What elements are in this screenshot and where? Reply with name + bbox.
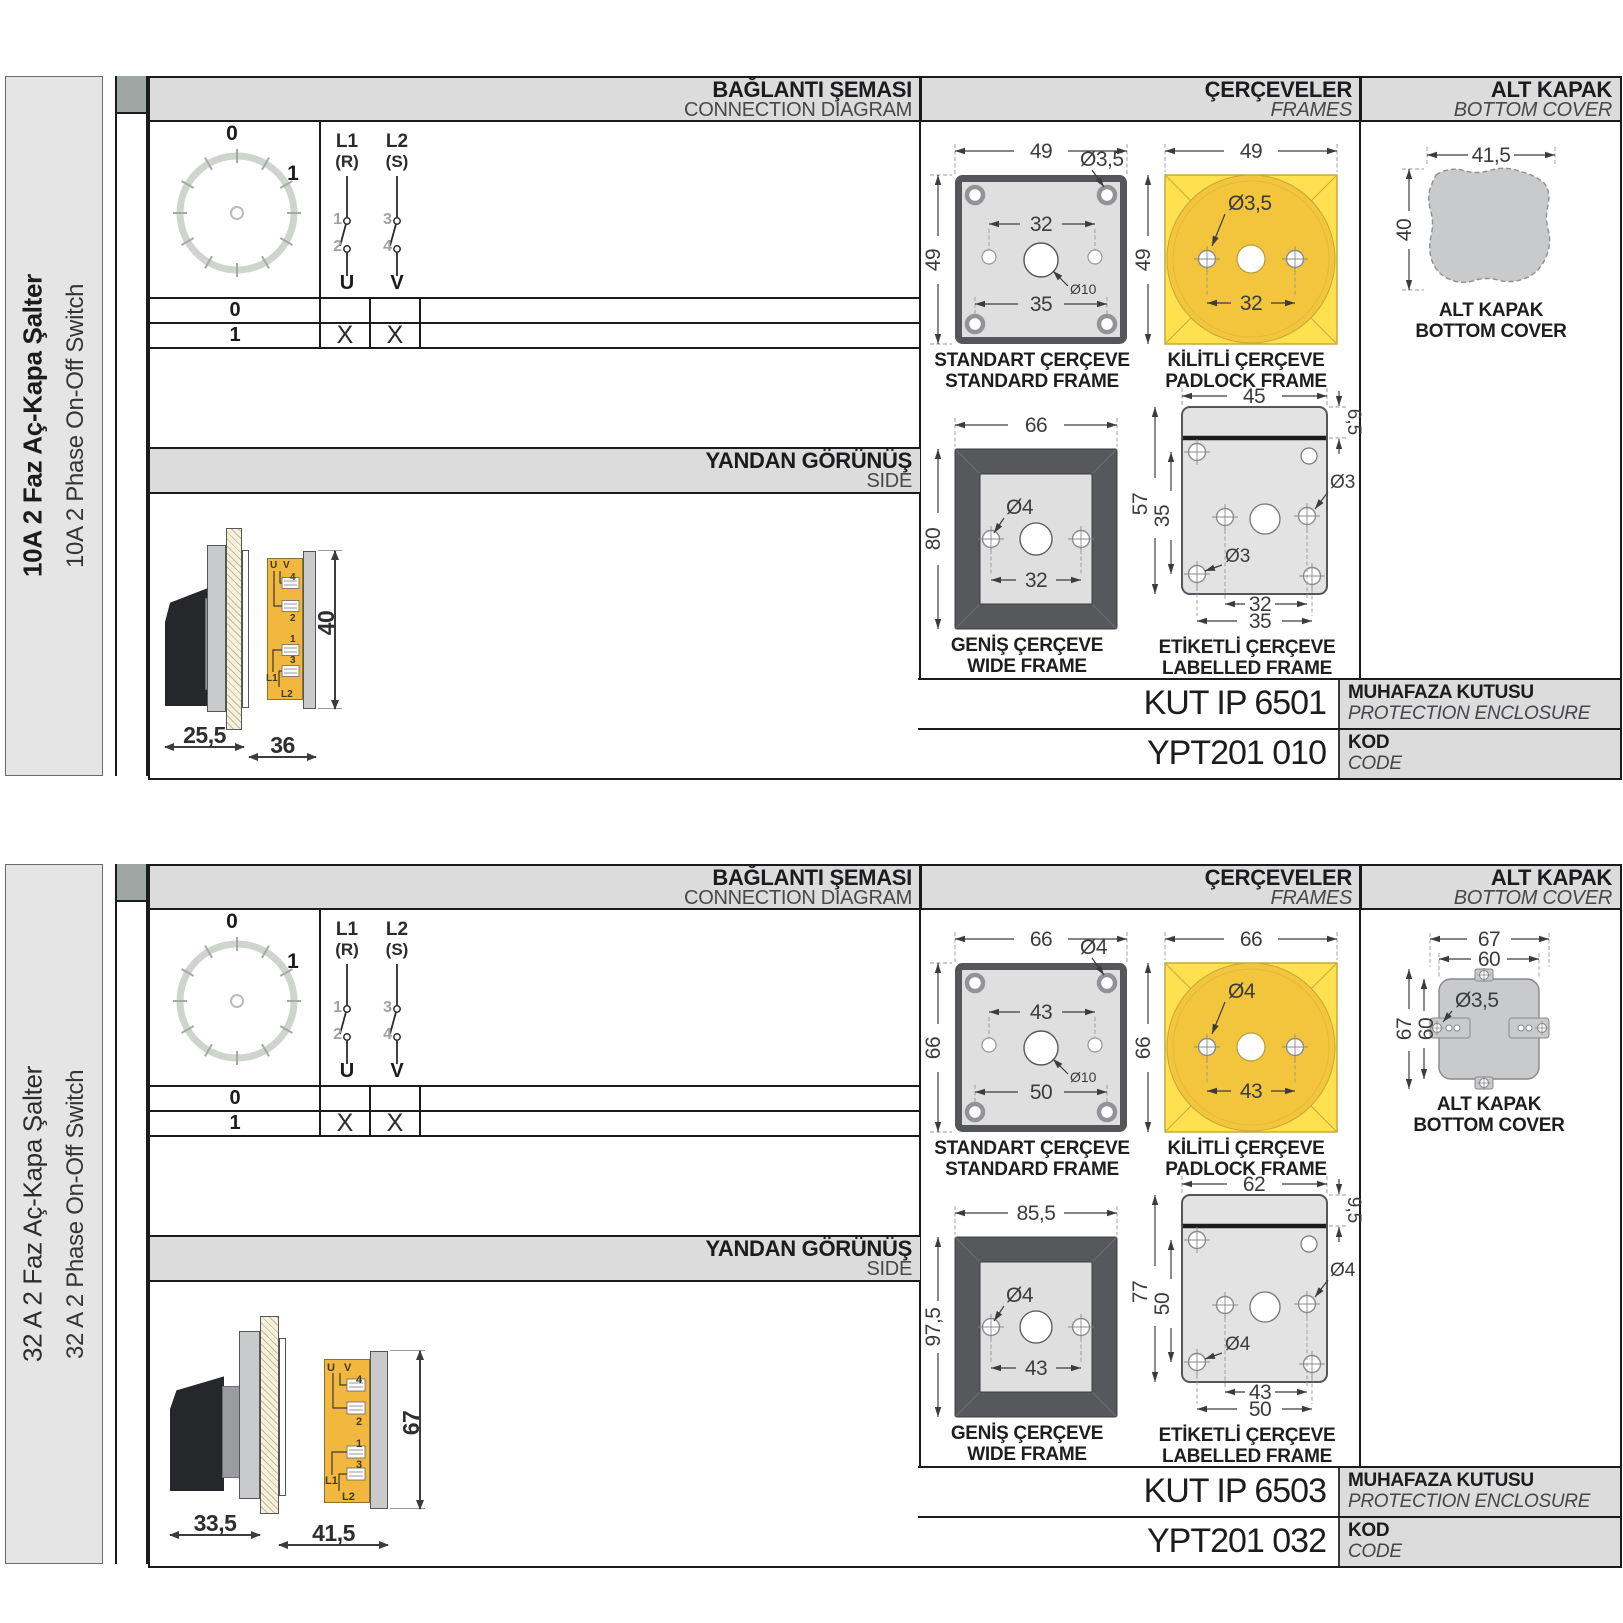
divider: [919, 78, 921, 778]
dim-height: 66: [922, 1037, 945, 1059]
dim-hole-span: 32: [1030, 213, 1052, 236]
product-section-10a: 10A 2 Faz Aç-Kapa Şalter 10A 2 Phase On-…: [0, 76, 1623, 776]
terminal-4: 4: [290, 572, 296, 583]
enclosure-label: MUHAFAZA KUTUSU PROTECTION ENCLOSURE: [1338, 680, 1620, 728]
header-frames: ÇERÇEVELER FRAMES: [920, 866, 1360, 910]
header-cover: ALT KAPAK BOTTOM COVER: [1360, 78, 1620, 122]
contact-2: 2: [320, 238, 342, 256]
dim-hole-r: Ø3: [1330, 472, 1355, 493]
terminal-2: 2: [290, 613, 296, 624]
bottom-cover-caption: ALT KAPAKBOTTOM COVER: [1396, 300, 1586, 342]
header-cover-en: BOTTOM COVER: [1362, 100, 1612, 120]
dim-center-hole: Ø10: [1070, 1069, 1097, 1085]
dim-width: 66: [1025, 414, 1047, 437]
index-tab-column: [115, 864, 148, 1564]
dim-hole-span: 32: [1240, 292, 1262, 315]
catalog-page: 10A 2 Faz Aç-Kapa Şalter 10A 2 Phase On-…: [0, 0, 1623, 1623]
header-connection-tr: BAĞLANTI ŞEMASI: [150, 867, 912, 888]
labelled-frame-caption: ETİKETLİ ÇERÇEVELABELLED FRAME: [1127, 637, 1367, 679]
dim-height: 40: [1393, 219, 1416, 241]
pole1-label: L1(R): [322, 132, 372, 172]
dim-hole-b: Ø4: [1225, 1334, 1251, 1355]
wide-frame-caption: GENİŞ ÇERÇEVEWIDE FRAME: [922, 635, 1132, 677]
dim-hole-span: 32: [1025, 569, 1047, 592]
enclosure-code-row: KUT IP 6501 MUHAFAZA KUTUSU PROTECTION E…: [918, 678, 1620, 728]
dim-width: 49: [1240, 140, 1262, 163]
header-connection: BAĞLANTI ŞEMASI CONNECTION DIAGRAM: [150, 866, 920, 910]
terminal-l1: L1: [325, 1475, 338, 1487]
terminal-l2: L2: [281, 689, 293, 700]
dim-hole: Ø4: [1006, 496, 1034, 519]
dial-position-0: 0: [220, 122, 244, 146]
dim-hole-span: 43: [1030, 1001, 1052, 1024]
index-tab-column: [115, 76, 148, 776]
dim-height: 77: [1129, 1281, 1152, 1303]
header-frames-tr: ÇERÇEVELER: [922, 867, 1352, 888]
dim-span-b2: 35: [1249, 610, 1271, 633]
pole2-label: L2(S): [372, 920, 422, 960]
product-code-row: YPT201 032 KOD CODE: [918, 1516, 1620, 1566]
terminal-u: U: [270, 560, 277, 571]
switch-handle: [165, 586, 207, 706]
side-height-dim: 67: [398, 1403, 422, 1443]
divider: [150, 1135, 920, 1137]
output-v: V: [377, 1060, 417, 1083]
dim-hole: Ø3,5: [1228, 192, 1272, 215]
product-title-tr: 10A 2 Faz Aç-Kapa Şalter: [14, 77, 52, 775]
dim-hole-span: 43: [1240, 1080, 1262, 1103]
header-connection-tr: BAĞLANTI ŞEMASI: [150, 79, 912, 100]
row-0-label: 0: [150, 1087, 320, 1110]
contact-2: 2: [320, 1026, 342, 1044]
mounting-plate: [207, 545, 226, 712]
terminal-v: V: [283, 560, 290, 571]
dim-mount-span: 35: [1030, 293, 1052, 316]
labelled-frame-drawing: 62 9,5 77 50 Ø4 Ø4 43 50: [1127, 1166, 1367, 1426]
datasheet-panel: BAĞLANTI ŞEMASI CONNECTION DIAGRAM ÇERÇE…: [148, 864, 1622, 1568]
frame-plate: [959, 179, 1124, 341]
index-tab: [117, 76, 146, 114]
code-label: KOD CODE: [1338, 730, 1620, 778]
row-1-label: 1: [150, 1112, 320, 1135]
dim-hole: Ø3,5: [1455, 989, 1499, 1012]
dim-overall-height: 67: [1393, 1018, 1416, 1040]
header-frames-en: FRAMES: [922, 100, 1352, 120]
cover-body: [1430, 968, 1549, 1090]
rear-plate: [370, 1351, 388, 1509]
dim-height: 49: [922, 249, 945, 271]
dim-height: 97,5: [922, 1308, 945, 1347]
header-frames-tr: ÇERÇEVELER: [922, 79, 1352, 100]
side-height-dim: 40: [313, 603, 337, 643]
dim-corner-hole: Ø4: [1080, 936, 1108, 959]
divider: [150, 347, 920, 349]
dim-body-width: 60: [1478, 948, 1500, 971]
mounting-plate: [239, 1331, 260, 1499]
product-code: YPT201 010: [918, 730, 1338, 778]
header-frames-en: FRAMES: [922, 888, 1352, 908]
spacer-plate: [242, 550, 249, 708]
header-connection-en: CONNECTION DIAGRAM: [150, 888, 912, 908]
side-view-header: YANDAN GÖRÜNÜŞ SIDE: [150, 447, 920, 494]
terminal-v: V: [344, 1362, 351, 1374]
contact-3: 3: [370, 999, 392, 1017]
side-length-dim: 36: [249, 732, 316, 759]
terminal-u: U: [327, 1362, 335, 1374]
wide-frame-caption: GENİŞ ÇERÇEVEWIDE FRAME: [922, 1423, 1132, 1465]
wires: [332, 1373, 347, 1491]
product-label-bar: 10A 2 Faz Aç-Kapa Şalter 10A 2 Phase On-…: [5, 76, 103, 776]
dim-height: 49: [1132, 249, 1155, 271]
side-length-dim: 41,5: [279, 1520, 388, 1547]
panel-hatch: [260, 1316, 279, 1514]
labelled-frame-caption: ETİKETLİ ÇERÇEVELABELLED FRAME: [1127, 1425, 1367, 1467]
terminal-l2: L2: [342, 1491, 355, 1503]
handle-shaft: [222, 1386, 240, 1478]
product-title-tr: 32 A 2 Faz Aç-Kapa Şalter: [14, 865, 52, 1563]
dial-position-0: 0: [220, 910, 244, 934]
output-u: U: [327, 1060, 367, 1083]
row-0-label: 0: [150, 299, 320, 322]
panel-hatch: [226, 528, 242, 730]
pole1-label: L1(R): [322, 920, 372, 960]
contact-1: 1: [320, 999, 342, 1017]
product-label-bar: 32 A 2 Faz Aç-Kapa Şalter 32 A 2 Phase O…: [5, 864, 103, 1564]
dim-corner-hole: Ø3,5: [1080, 148, 1124, 171]
dim-width: 66: [1030, 928, 1052, 951]
dim-center-hole: Ø10: [1070, 281, 1097, 297]
wires: [273, 571, 282, 687]
dim-hole-span: 43: [1025, 1357, 1047, 1380]
pole2-label: L2(S): [372, 132, 422, 172]
terminal-l1: L1: [266, 673, 278, 684]
terminal-3: 3: [356, 1459, 362, 1471]
row-1-v-mark: X: [370, 323, 420, 347]
dim-width: 85,5: [1017, 1202, 1056, 1225]
dial-position-1: 1: [281, 950, 305, 974]
code-label: KOD CODE: [1338, 1518, 1620, 1566]
spacer-plate: [279, 1338, 286, 1496]
side-view-header-en: SIDE: [150, 1259, 912, 1279]
enclosure-code-row: KUT IP 6503 MUHAFAZA KUTUSU PROTECTION E…: [918, 1466, 1620, 1516]
dim-tab: 6,5: [1343, 409, 1364, 435]
dim-width: 62: [1243, 1173, 1265, 1196]
product-code-row: YPT201 010 KOD CODE: [918, 728, 1620, 778]
terminal-3: 3: [290, 655, 296, 666]
product-title-en: 32 A 2 Phase On-Off Switch: [58, 865, 94, 1563]
datasheet-panel: BAĞLANTI ŞEMASI CONNECTION DIAGRAM ÇERÇE…: [148, 76, 1622, 780]
bottom-cover-drawing: 41,5 40: [1392, 133, 1572, 303]
standard-frame-caption: STANDART ÇERÇEVESTANDARD FRAME: [922, 350, 1142, 392]
contact-1: 1: [320, 211, 342, 229]
terminal-1: 1: [356, 1438, 362, 1450]
side-view-header-tr: YANDAN GÖRÜNÜŞ: [150, 450, 912, 471]
dim-height: 66: [1132, 1037, 1155, 1059]
dim-span-v: 35: [1151, 505, 1174, 527]
terminal-4: 4: [356, 1374, 362, 1386]
dim-width: 66: [1240, 928, 1262, 951]
frame-plate: [955, 449, 1117, 629]
dim-width: 45: [1243, 385, 1265, 408]
dim-height: 80: [922, 528, 945, 550]
cover-body: [1429, 168, 1550, 282]
divider: [919, 866, 921, 1566]
side-depth-dim: 25,5: [165, 722, 244, 749]
side-view-header-en: SIDE: [150, 471, 912, 491]
terminal-1: 1: [290, 634, 296, 645]
labelled-frame-drawing: 45 6,5 57 35 Ø3 Ø3 32 35: [1127, 378, 1367, 638]
contact-4: 4: [370, 1026, 392, 1044]
standard-frame-caption: STANDART ÇERÇEVESTANDARD FRAME: [922, 1138, 1142, 1180]
row-1-u-mark: X: [320, 323, 370, 347]
index-tab: [117, 864, 146, 902]
header-cover-tr: ALT KAPAK: [1362, 79, 1612, 100]
dim-hole: Ø4: [1006, 1284, 1034, 1307]
dim-tab: 9,5: [1343, 1197, 1364, 1223]
contact-3: 3: [370, 211, 392, 229]
dim-width: 41,5: [1472, 144, 1511, 167]
bottom-cover-caption: ALT KAPAKBOTTOM COVER: [1394, 1094, 1584, 1136]
dim-hole: Ø4: [1228, 980, 1256, 1003]
enclosure-code: KUT IP 6503: [918, 1468, 1338, 1516]
dial-position-1: 1: [281, 162, 305, 186]
dim-hole-b: Ø3: [1225, 546, 1250, 567]
header-connection-en: CONNECTION DIAGRAM: [150, 100, 912, 120]
header-connection: BAĞLANTI ŞEMASI CONNECTION DIAGRAM: [150, 78, 920, 122]
row-1-label: 1: [150, 324, 320, 347]
product-code: YPT201 032: [918, 1518, 1338, 1566]
row-1-v-mark: X: [370, 1111, 420, 1135]
frame-plate: [959, 967, 1124, 1129]
dim-hole-r: Ø4: [1330, 1260, 1356, 1281]
frame-plate: [1182, 407, 1327, 594]
frame-plate: [955, 1237, 1117, 1417]
product-section-32a: 32 A 2 Faz Aç-Kapa Şalter 32 A 2 Phase O…: [0, 864, 1623, 1564]
header-frames: ÇERÇEVELER FRAMES: [920, 78, 1360, 122]
output-v: V: [377, 272, 417, 295]
product-title-en: 10A 2 Phase On-Off Switch: [58, 77, 94, 775]
dim-span-b2: 50: [1249, 1398, 1271, 1421]
row-1-u-mark: X: [320, 1111, 370, 1135]
dim-body-height: 60: [1415, 1018, 1438, 1040]
contact-4: 4: [370, 238, 392, 256]
dim-width: 49: [1030, 140, 1052, 163]
side-depth-dim: 33,5: [170, 1510, 260, 1537]
enclosure-label: MUHAFAZA KUTUSU PROTECTION ENCLOSURE: [1338, 1468, 1620, 1516]
side-view-header-tr: YANDAN GÖRÜNÜŞ: [150, 1238, 912, 1259]
terminal-2: 2: [356, 1416, 362, 1428]
side-view-header: YANDAN GÖRÜNÜŞ SIDE: [150, 1235, 920, 1282]
enclosure-code: KUT IP 6501: [918, 680, 1338, 728]
dim-height: 57: [1129, 493, 1152, 515]
output-u: U: [327, 272, 367, 295]
dim-mount-span: 50: [1030, 1081, 1052, 1104]
dim-span-v: 50: [1151, 1293, 1174, 1315]
frame-plate: [1182, 1195, 1327, 1382]
switch-handle: [170, 1374, 224, 1491]
bottom-cover-drawing: 67 60 67 60 Ø3,5: [1387, 901, 1587, 1101]
header-cover-tr: ALT KAPAK: [1362, 867, 1612, 888]
